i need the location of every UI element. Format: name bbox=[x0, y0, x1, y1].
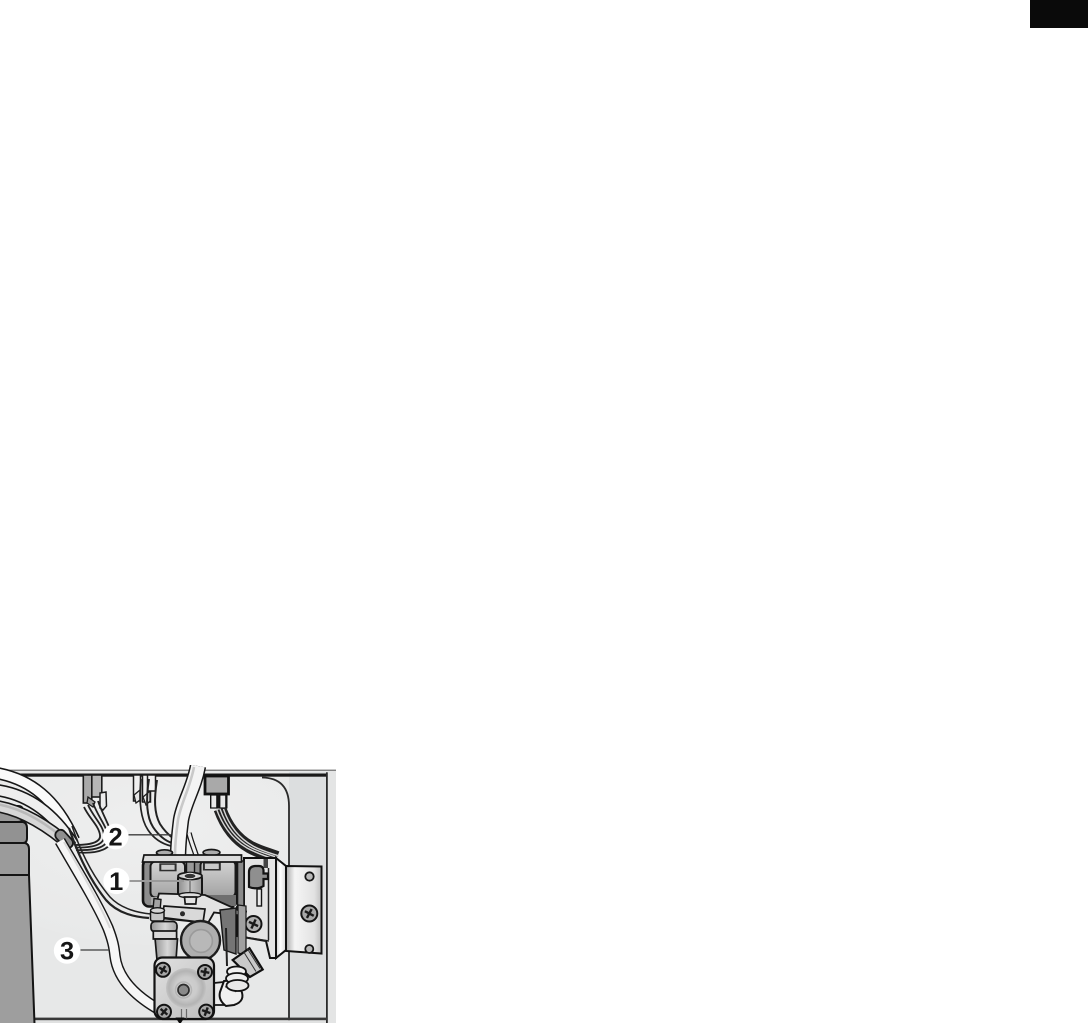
svg-text:2: 2 bbox=[109, 824, 123, 852]
svg-text:1: 1 bbox=[109, 868, 123, 896]
svg-text:3: 3 bbox=[60, 938, 74, 966]
